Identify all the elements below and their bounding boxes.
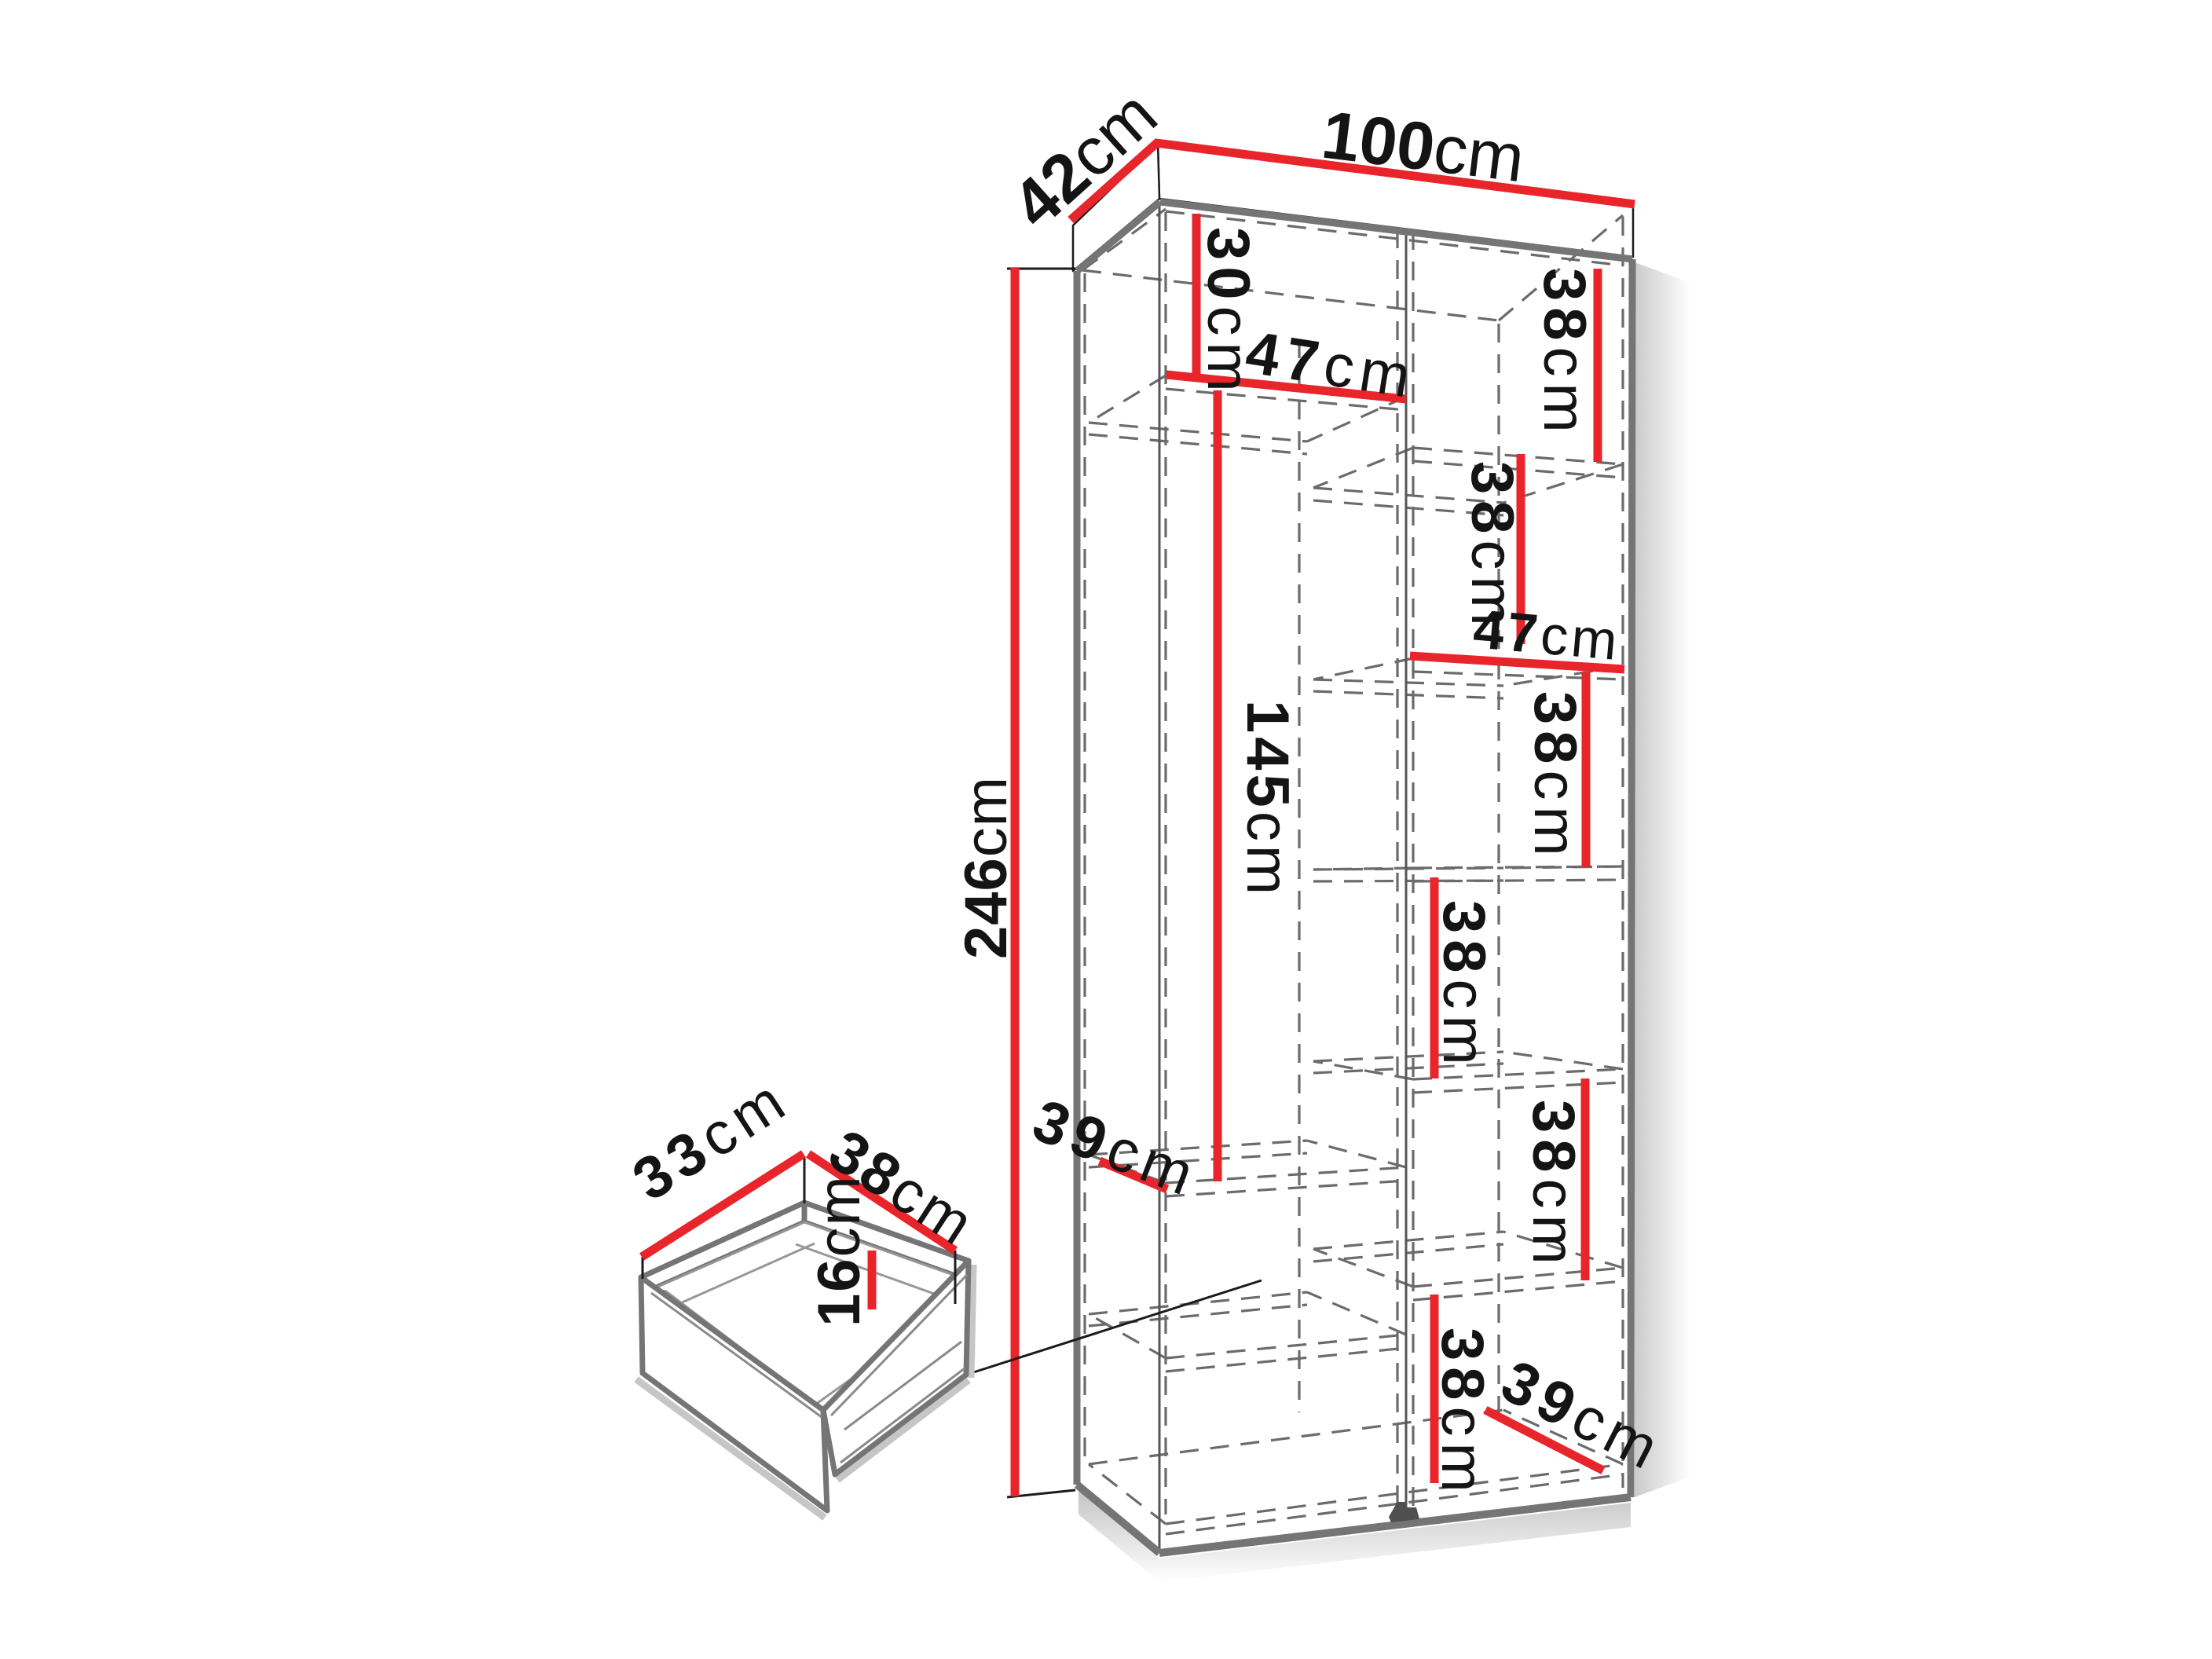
svg-text:38cm: 38cm — [1531, 268, 1598, 439]
svg-text:38cm: 38cm — [1429, 1328, 1496, 1499]
svg-text:38cm: 38cm — [1520, 1100, 1587, 1271]
svg-text:38cm: 38cm — [1430, 900, 1497, 1071]
svg-text:47cm: 47cm — [1471, 598, 1623, 672]
svg-text:16cm: 16cm — [806, 1174, 873, 1327]
svg-text:145cm: 145cm — [1234, 700, 1301, 899]
svg-text:38cm: 38cm — [1522, 691, 1588, 862]
svg-text:246cm: 246cm — [953, 776, 1020, 959]
